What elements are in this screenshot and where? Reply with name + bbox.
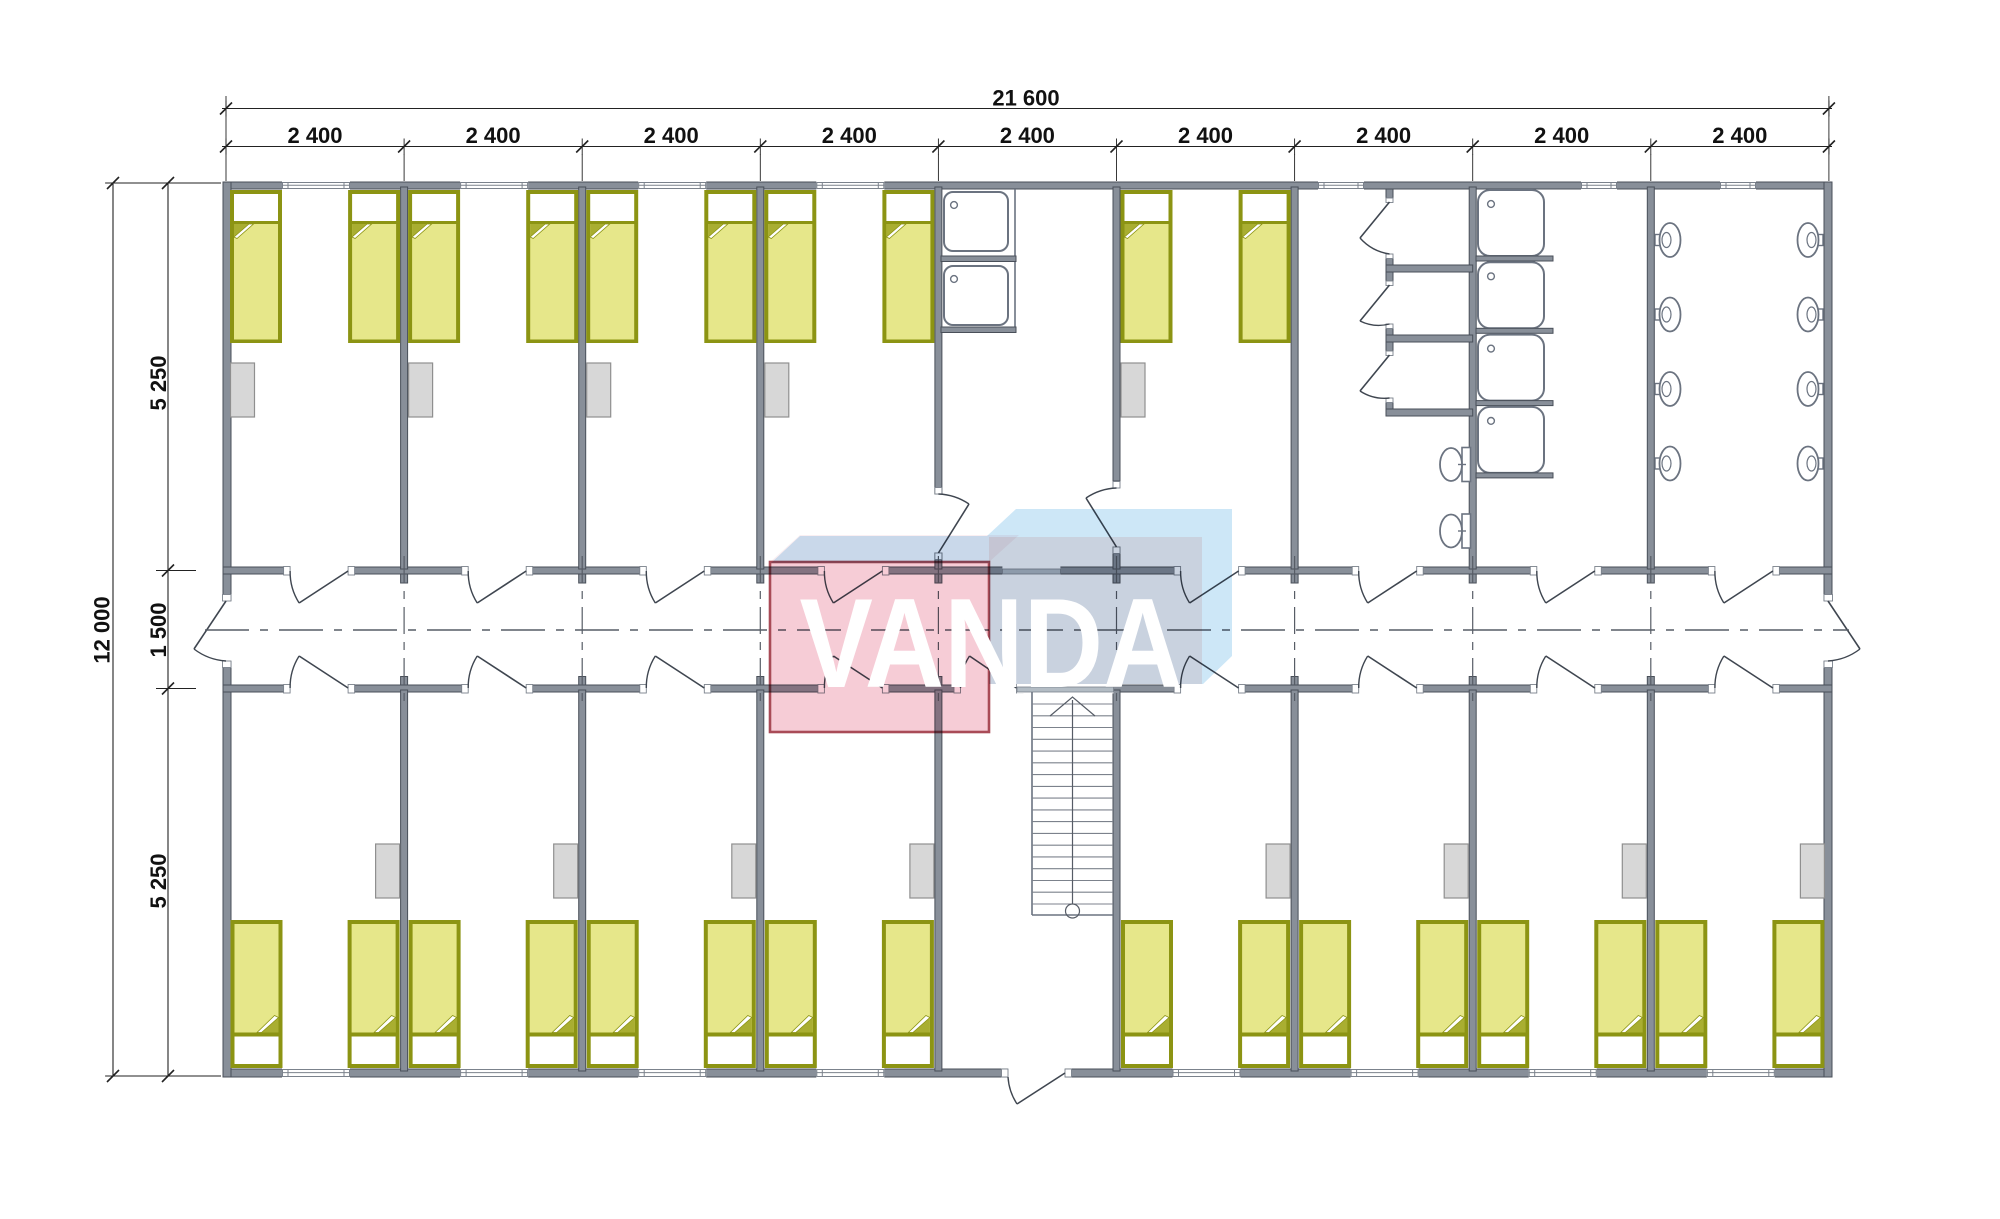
svg-text:5 250: 5 250 <box>146 853 171 908</box>
svg-text:2 400: 2 400 <box>1534 123 1589 148</box>
svg-text:2 400: 2 400 <box>1356 123 1411 148</box>
svg-text:12 000: 12 000 <box>90 596 115 663</box>
svg-text:2 400: 2 400 <box>822 123 877 148</box>
svg-text:2 400: 2 400 <box>466 123 521 148</box>
svg-text:2 400: 2 400 <box>287 123 342 148</box>
svg-text:5 250: 5 250 <box>146 355 171 410</box>
svg-text:1 500: 1 500 <box>146 602 171 657</box>
svg-text:21 600: 21 600 <box>992 86 1059 111</box>
svg-text:2 400: 2 400 <box>1178 123 1233 148</box>
svg-text:VANDA: VANDA <box>800 572 1183 714</box>
svg-text:2 400: 2 400 <box>1000 123 1055 148</box>
svg-text:2 400: 2 400 <box>1712 123 1767 148</box>
svg-text:2 400: 2 400 <box>644 123 699 148</box>
